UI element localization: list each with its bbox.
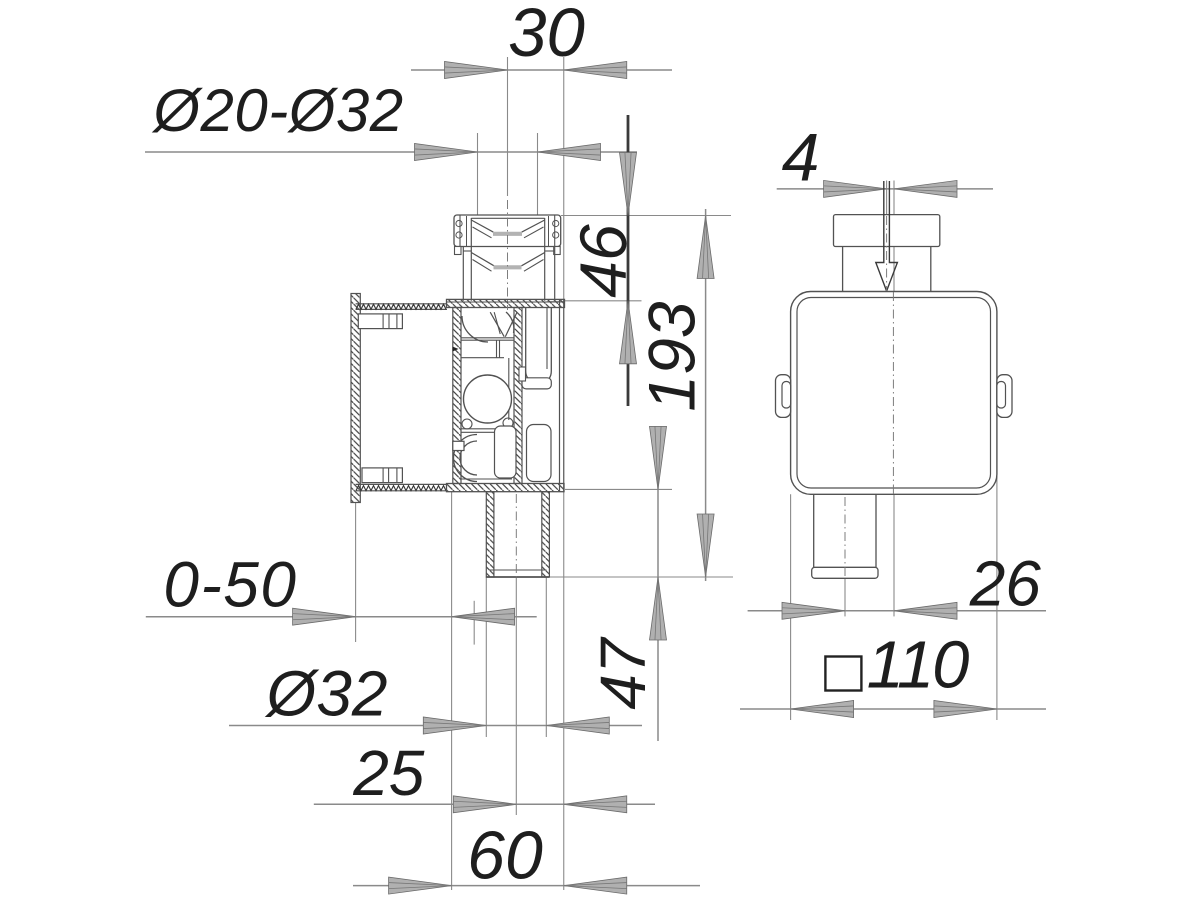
svg-text:Ø32: Ø32 bbox=[265, 657, 388, 729]
svg-text:0-50: 0-50 bbox=[163, 549, 297, 621]
svg-text:26: 26 bbox=[969, 548, 1042, 620]
svg-text:46: 46 bbox=[566, 224, 640, 298]
svg-text:4: 4 bbox=[782, 119, 820, 195]
svg-text:25: 25 bbox=[352, 737, 425, 809]
svg-text:30: 30 bbox=[508, 0, 585, 71]
svg-text:47: 47 bbox=[587, 636, 659, 710]
svg-text:193: 193 bbox=[635, 301, 709, 411]
svg-text:60: 60 bbox=[467, 817, 543, 893]
svg-text:110: 110 bbox=[867, 627, 970, 702]
svg-text:Ø20-Ø32: Ø20-Ø32 bbox=[151, 77, 403, 144]
